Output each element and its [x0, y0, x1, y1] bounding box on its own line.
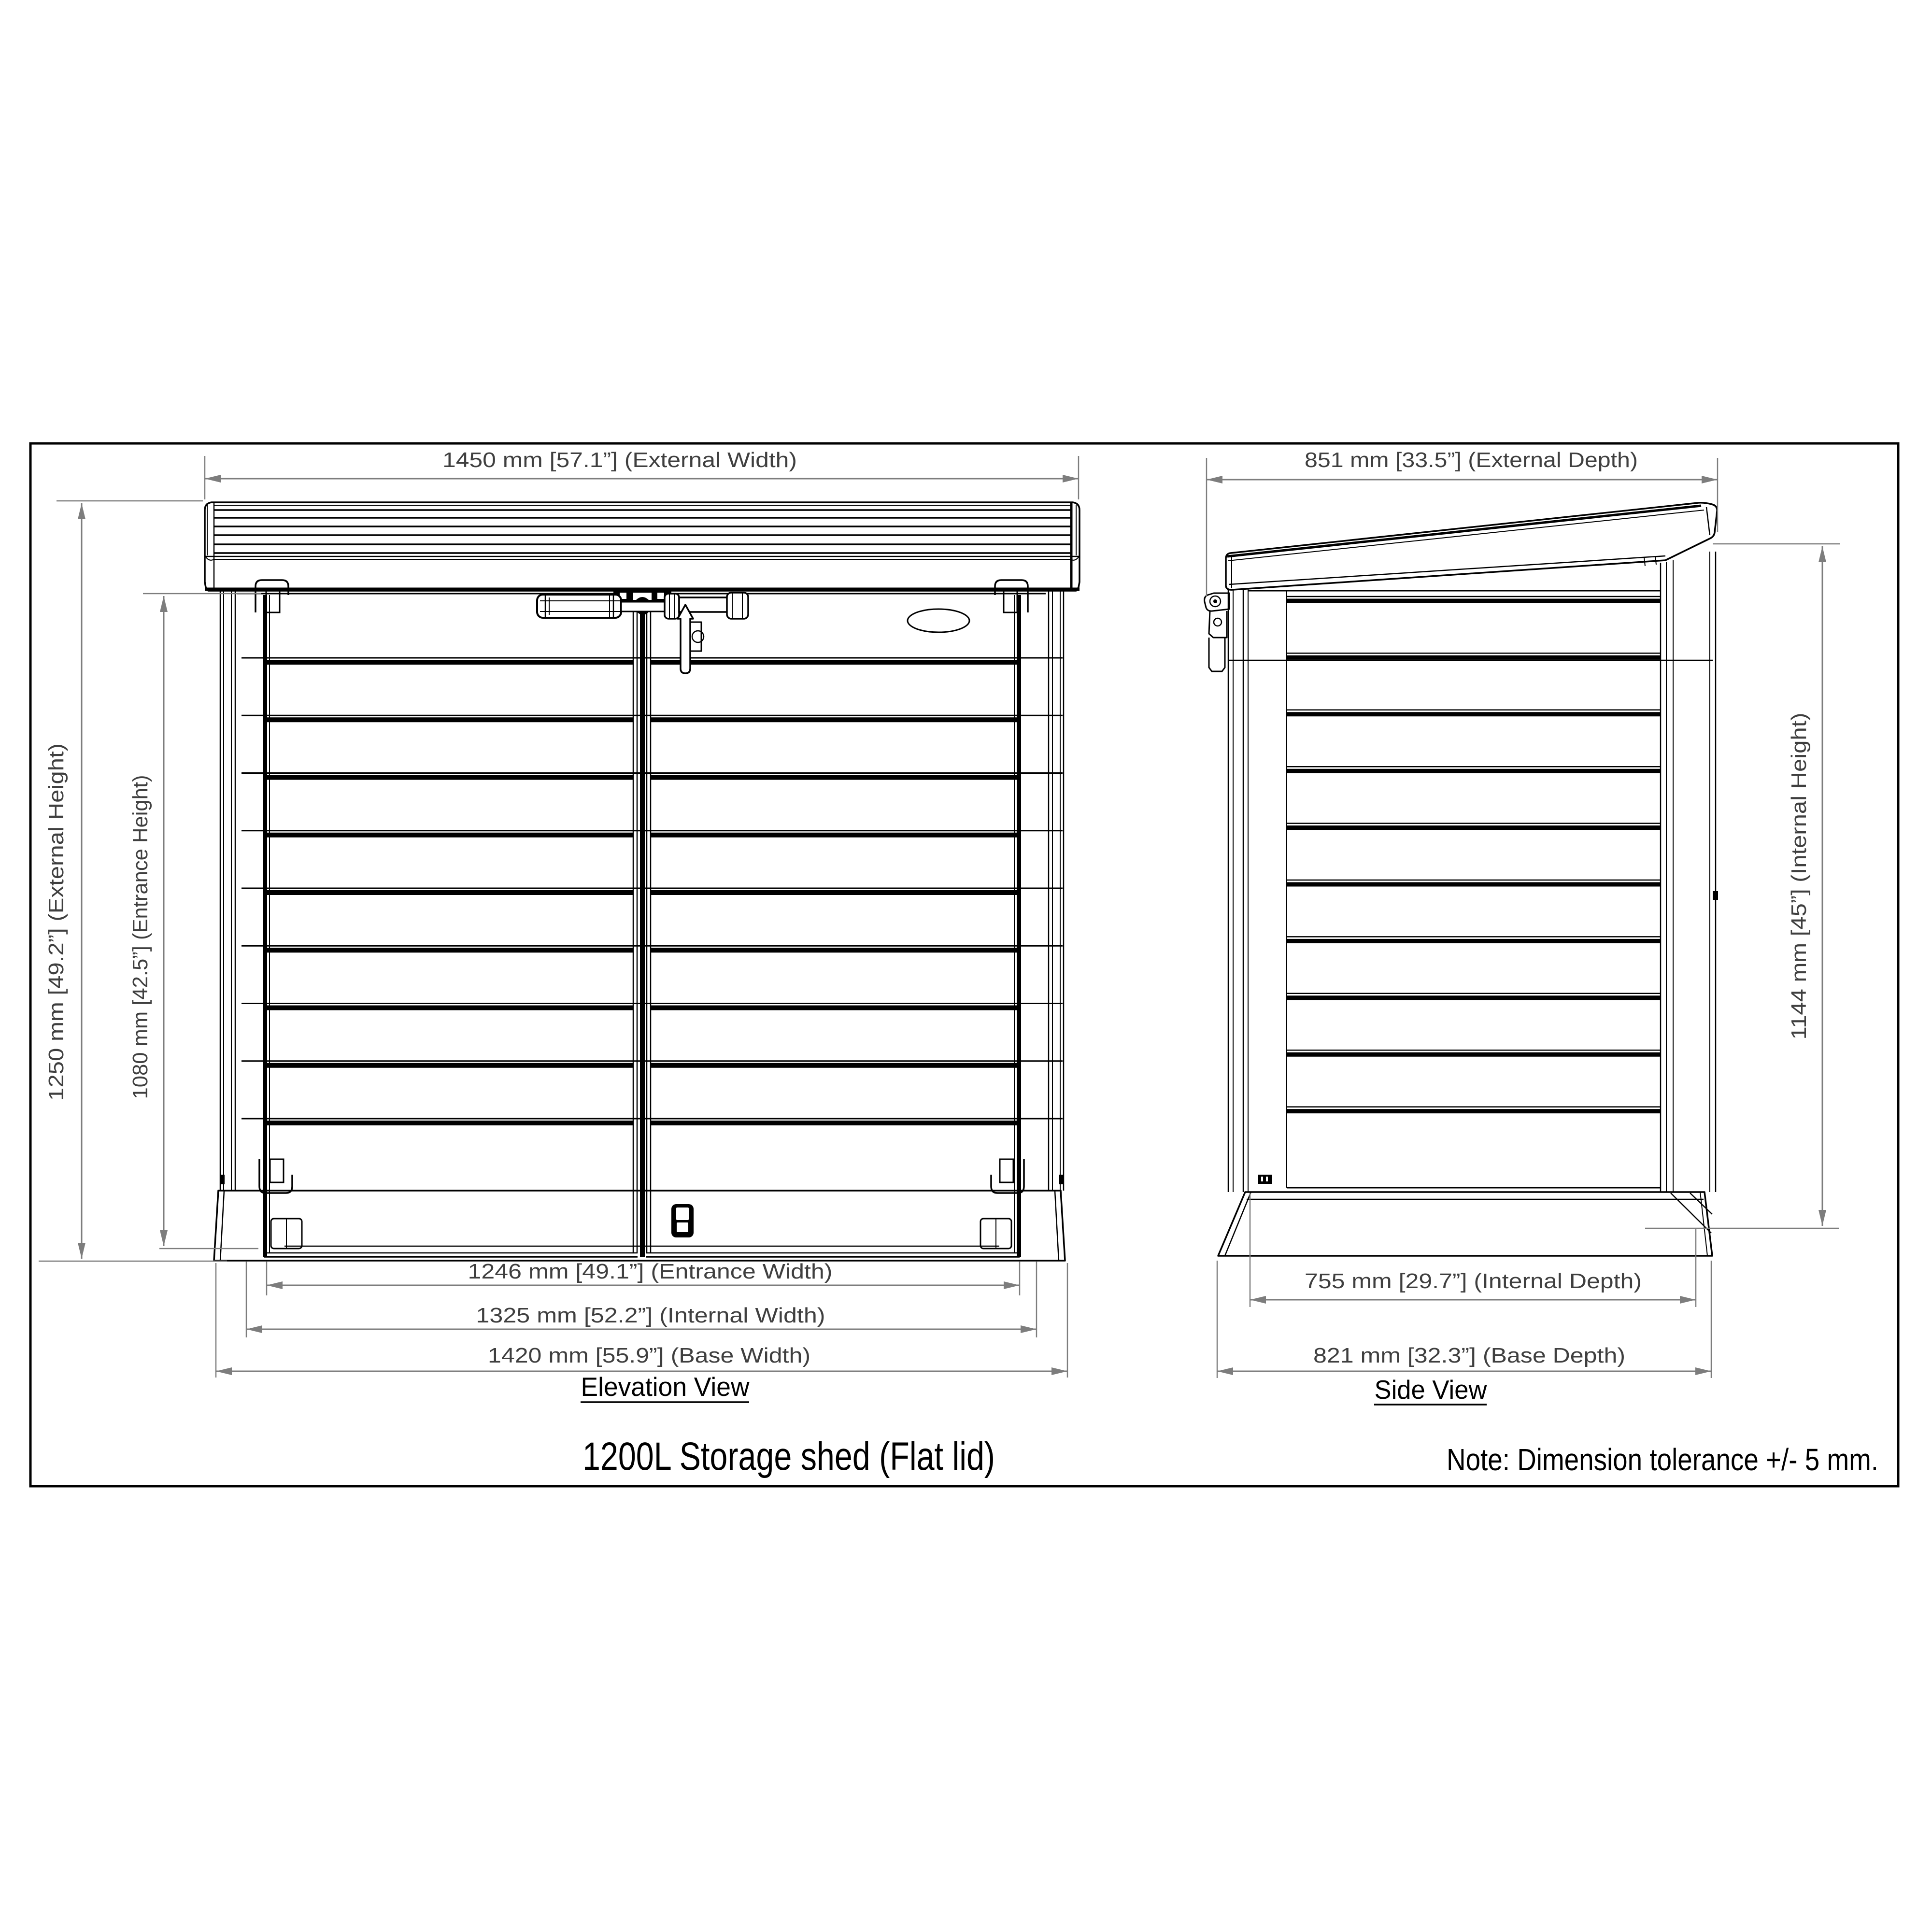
svg-text:755 mm [29.7”] (Internal Depth: 755 mm [29.7”] (Internal Depth)	[1305, 1269, 1642, 1293]
svg-text:851 mm [33.5”] (External Depth: 851 mm [33.5”] (External Depth)	[1305, 448, 1638, 472]
svg-text:1144 mm [45”] (Internal Height: 1144 mm [45”] (Internal Height)	[1787, 713, 1811, 1040]
svg-text:1250 mm [49.2”] (External Heig: 1250 mm [49.2”] (External Height)	[44, 743, 68, 1101]
svg-text:Elevation View: Elevation View	[581, 1372, 750, 1402]
svg-text:Note: Dimension tolerance +/-: Note: Dimension tolerance +/- 5 mm.	[1447, 1442, 1878, 1477]
svg-text:Side View: Side View	[1375, 1375, 1487, 1405]
svg-text:821 mm [32.3”] (Base Depth): 821 mm [32.3”] (Base Depth)	[1313, 1344, 1625, 1367]
svg-text:1450 mm [57.1”] (External Widt: 1450 mm [57.1”] (External Width)	[442, 448, 797, 472]
svg-text:1246 mm [49.1”] (Entrance Widt: 1246 mm [49.1”] (Entrance Width)	[468, 1260, 833, 1283]
svg-text:1080 mm [42.5”] (Entrance Heig: 1080 mm [42.5”] (Entrance Height)	[128, 775, 152, 1099]
svg-text:1200L Storage shed (Flat lid): 1200L Storage shed (Flat lid)	[582, 1435, 995, 1478]
svg-text:1325 mm [52.2”] (Internal Widt: 1325 mm [52.2”] (Internal Width)	[476, 1304, 825, 1327]
svg-text:1420 mm [55.9”] (Base Width): 1420 mm [55.9”] (Base Width)	[488, 1344, 810, 1367]
